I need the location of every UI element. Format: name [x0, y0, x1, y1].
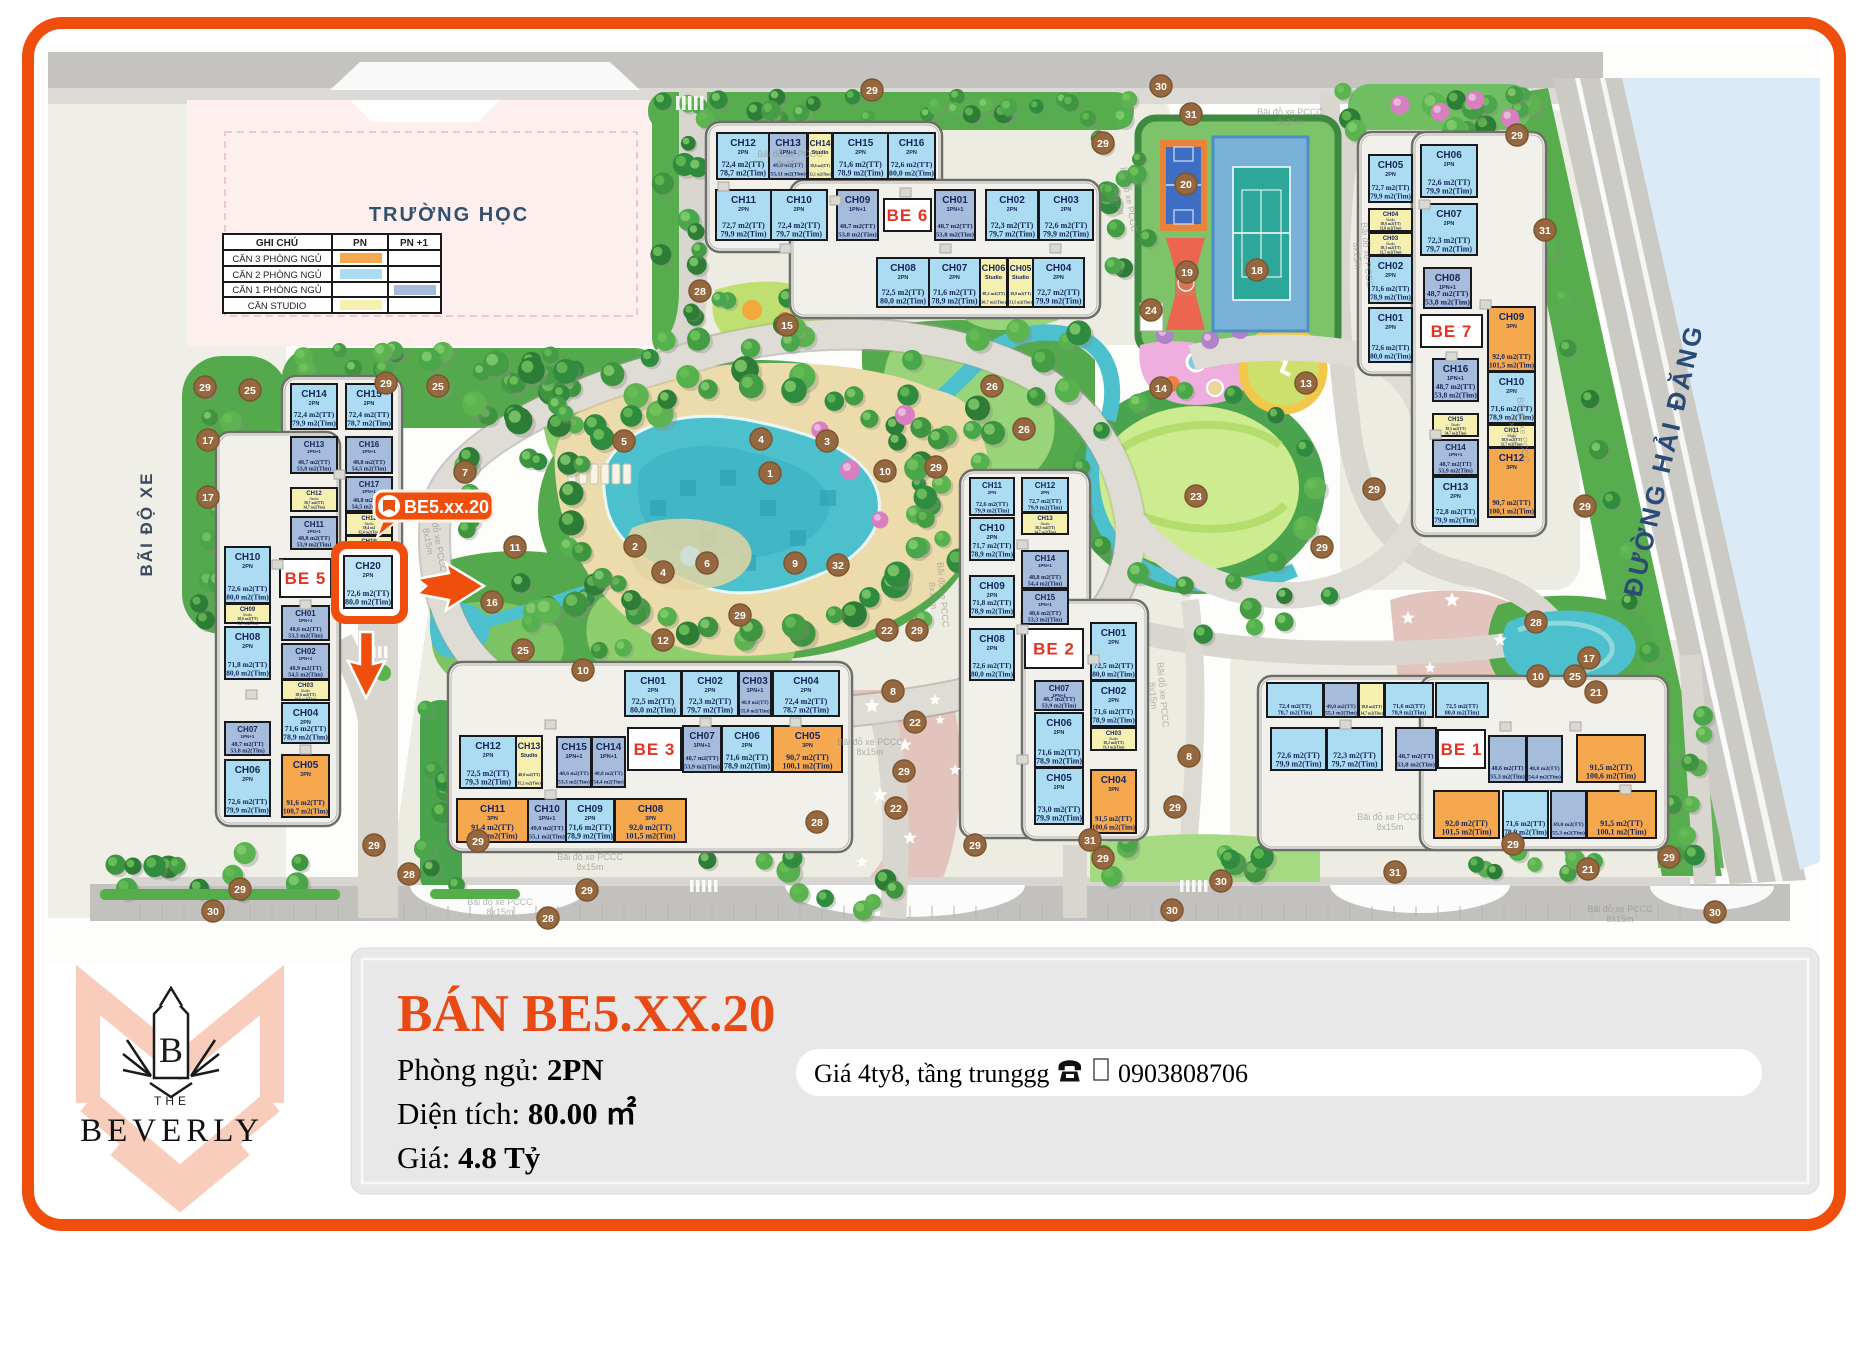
- svg-text:18: 18: [1251, 265, 1263, 277]
- svg-text:79,9 m2(Tim): 79,9 m2(Tim): [1275, 760, 1321, 769]
- svg-text:54,4 m2(Tim): 54,4 m2(Tim): [593, 779, 624, 786]
- svg-text:55,3 m2(Tim): 55,3 m2(Tim): [1552, 830, 1585, 837]
- svg-text:2PN: 2PN: [309, 401, 320, 407]
- svg-text:55,11 m2(Tim): 55,11 m2(Tim): [770, 171, 805, 178]
- svg-text:2PN: 2PN: [1385, 325, 1396, 331]
- svg-text:2PN: 2PN: [242, 777, 253, 783]
- svg-text:2PN: 2PN: [738, 207, 749, 213]
- svg-text:29: 29: [930, 462, 942, 474]
- svg-text:2PN: 2PN: [794, 207, 805, 213]
- svg-text:17: 17: [1583, 653, 1595, 665]
- svg-text:2PN: 2PN: [1108, 698, 1119, 704]
- svg-text:29: 29: [234, 884, 246, 896]
- svg-text:29: 29: [199, 382, 211, 394]
- svg-text:CH01: CH01: [1101, 628, 1127, 639]
- svg-text:38,2 m2(TT): 38,2 m2(TT): [1103, 741, 1124, 745]
- svg-text:78,9 m2(Tim): 78,9 m2(Tim): [1392, 710, 1427, 717]
- svg-text:29: 29: [1097, 138, 1109, 150]
- svg-text:CH12: CH12: [1035, 481, 1056, 490]
- svg-text:CH14: CH14: [301, 389, 327, 400]
- svg-text:20: 20: [1180, 179, 1192, 191]
- svg-text:CH11: CH11: [304, 520, 325, 529]
- svg-text:55,1 m2(Tim): 55,1 m2(Tim): [529, 834, 565, 841]
- svg-text:CH15: CH15: [1035, 593, 1056, 602]
- svg-text:38,0 m2(TT): 38,0 m2(TT): [237, 617, 258, 621]
- svg-text:11: 11: [509, 542, 520, 554]
- svg-text:79,9 m2(Tim): 79,9 m2(Tim): [292, 419, 336, 428]
- svg-text:CH09: CH09: [577, 804, 603, 815]
- svg-text:CH06: CH06: [982, 263, 1006, 273]
- svg-text:48,6 m2(TT): 48,6 m2(TT): [1492, 765, 1524, 772]
- svg-text:79,7 m2(Tim): 79,7 m2(Tim): [1331, 760, 1377, 769]
- svg-text:28: 28: [403, 869, 415, 881]
- svg-text:29: 29: [581, 885, 593, 897]
- svg-text:2PN: 2PN: [242, 644, 253, 650]
- svg-text:25: 25: [432, 381, 444, 393]
- svg-text:CH08: CH08: [235, 632, 261, 643]
- svg-text:54,4 m2(Tim): 54,4 m2(Tim): [1528, 774, 1561, 781]
- svg-text:2PN: 2PN: [1007, 207, 1018, 213]
- svg-text:53,8 m2(Tim): 53,8 m2(Tim): [838, 232, 877, 239]
- svg-text:1PN+1: 1PN+1: [1038, 563, 1052, 568]
- svg-text:53,3 m2(Tim): 53,3 m2(Tim): [558, 779, 590, 786]
- svg-text:101,5 m2(Tim): 101,5 m2(Tim): [1441, 828, 1491, 837]
- svg-text:CH06: CH06: [235, 765, 261, 776]
- svg-text:CH02: CH02: [295, 647, 316, 656]
- svg-text:79,9 m2(Tim): 79,9 m2(Tim): [1434, 516, 1477, 525]
- svg-text:35,2 m2(Tim): 35,2 m2(Tim): [517, 781, 541, 786]
- svg-text:79,7 m2(Tim): 79,7 m2(Tim): [989, 230, 1035, 239]
- svg-text:78,7 m2(Tim): 78,7 m2(Tim): [347, 419, 391, 428]
- svg-text:28: 28: [542, 913, 554, 925]
- svg-text:2PN: 2PN: [1450, 494, 1461, 500]
- svg-text:CH04: CH04: [1101, 775, 1127, 786]
- svg-text:4: 4: [758, 434, 764, 446]
- svg-text:2PN: 2PN: [987, 646, 998, 652]
- svg-text:79,7 m2(Tim): 79,7 m2(Tim): [687, 706, 733, 715]
- svg-text:78,9 m2(Tim): 78,9 m2(Tim): [931, 297, 977, 306]
- svg-text:53,9 m2(Tim): 53,9 m2(Tim): [1042, 703, 1077, 710]
- svg-text:48,8 m2(TT): 48,8 m2(TT): [1029, 574, 1061, 581]
- svg-text:48,8 m2(TT): 48,8 m2(TT): [594, 770, 622, 777]
- svg-text:2PN: 2PN: [906, 150, 917, 156]
- svg-text:29: 29: [1507, 839, 1519, 851]
- svg-text:CH08: CH08: [979, 634, 1005, 645]
- svg-text:Giá: 4.8 Tỷ: Giá: 4.8 Tỷ: [397, 1140, 541, 1175]
- svg-text:53,8 m2(Tim): 53,8 m2(Tim): [230, 748, 265, 755]
- svg-text:2PN: 2PN: [705, 688, 716, 694]
- svg-text:48,9 m2(TT): 48,9 m2(TT): [290, 665, 322, 672]
- svg-text:2PN: 2PN: [1108, 640, 1119, 646]
- svg-text:29: 29: [734, 610, 746, 622]
- svg-text:78,9 m2(Tim): 78,9 m2(Tim): [283, 733, 328, 742]
- svg-text:2PN: 2PN: [1385, 273, 1396, 279]
- svg-text:30,7 m2(Tim): 30,7 m2(Tim): [981, 300, 1006, 305]
- svg-text:CH10: CH10: [979, 523, 1005, 534]
- svg-text:2: 2: [632, 541, 638, 553]
- svg-text:3PN: 3PN: [802, 743, 813, 749]
- svg-text:2PN: 2PN: [949, 275, 960, 281]
- svg-text:3PN: 3PN: [300, 772, 311, 778]
- svg-text:78,9 m2(Tim): 78,9 m2(Tim): [971, 607, 1014, 616]
- svg-text:PN: PN: [353, 238, 367, 249]
- svg-text:CH07: CH07: [689, 731, 715, 742]
- svg-text:22: 22: [890, 803, 902, 815]
- svg-text:CH07: CH07: [237, 725, 258, 734]
- svg-text:53,3 m2(Tim): 53,3 m2(Tim): [1028, 617, 1063, 624]
- svg-text:CH10: CH10: [1499, 377, 1525, 388]
- svg-text:CH16: CH16: [899, 138, 925, 149]
- svg-text:29: 29: [472, 836, 484, 848]
- svg-text:29: 29: [866, 85, 878, 97]
- svg-text:30: 30: [1166, 905, 1178, 917]
- svg-text:80,0 m2(Tim): 80,0 m2(Tim): [1445, 710, 1480, 717]
- svg-text:38,6 m2(TT): 38,6 m2(TT): [295, 693, 316, 697]
- svg-text:71,6 m2(TT): 71,6 m2(TT): [1372, 285, 1410, 293]
- svg-text:CH07: CH07: [1436, 209, 1462, 220]
- svg-text:48,8 m2(TT): 48,8 m2(TT): [1529, 765, 1559, 772]
- svg-text:2PN: 2PN: [742, 743, 753, 749]
- svg-text:48,6 m2(TT): 48,6 m2(TT): [559, 770, 589, 777]
- svg-text:1PN+1: 1PN+1: [299, 618, 313, 623]
- svg-text:1PN+1: 1PN+1: [362, 449, 376, 454]
- svg-text:49,0 m2(TT): 49,0 m2(TT): [531, 825, 564, 832]
- svg-text:79,9 m2(Tim): 79,9 m2(Tim): [1426, 187, 1472, 196]
- svg-text:80,0 m2(Tim): 80,0 m2(Tim): [226, 593, 269, 602]
- svg-text:26: 26: [1018, 424, 1030, 436]
- svg-text:40,0 m2(TT): 40,0 m2(TT): [518, 772, 540, 777]
- svg-text:2PN: 2PN: [855, 150, 866, 156]
- svg-text:72,5 m2(TT): 72,5 m2(TT): [1446, 703, 1478, 710]
- svg-text:72,7 m2(TT): 72,7 m2(TT): [1029, 498, 1061, 505]
- svg-text:CH13: CH13: [518, 741, 541, 751]
- svg-text:3: 3: [824, 436, 830, 448]
- svg-text:29: 29: [898, 766, 910, 778]
- svg-text:29: 29: [380, 378, 392, 390]
- svg-text:25: 25: [1569, 671, 1581, 683]
- svg-text:79,9 m2(Tim): 79,9 m2(Tim): [1035, 297, 1081, 306]
- svg-text:CH14: CH14: [1445, 443, 1466, 452]
- svg-text:4: 4: [660, 567, 666, 579]
- svg-text:CH05: CH05: [293, 760, 319, 771]
- svg-text:22: 22: [909, 717, 921, 729]
- svg-text:79,3 m2(Tim): 79,3 m2(Tim): [465, 778, 511, 787]
- svg-text:1PN+1: 1PN+1: [947, 207, 964, 213]
- svg-text:BÃI ĐỘ XE: BÃI ĐỘ XE: [136, 472, 156, 577]
- svg-text:38,5 m2(TT): 38,5 m2(TT): [1445, 427, 1466, 431]
- svg-text:31: 31: [1084, 835, 1096, 847]
- svg-text:29: 29: [1097, 853, 1109, 865]
- svg-text:78,9 m2(Tim): 78,9 m2(Tim): [837, 169, 883, 178]
- svg-text:48,7 m2(TT): 48,7 m2(TT): [1043, 696, 1075, 703]
- svg-text:CH05: CH05: [1378, 160, 1404, 171]
- svg-text:2PN: 2PN: [363, 573, 374, 579]
- svg-text:29: 29: [368, 840, 380, 852]
- svg-text:48,7 m2(TT): 48,7 m2(TT): [686, 755, 719, 762]
- svg-text:THE: THE: [154, 1094, 190, 1108]
- svg-text:34,7 m2(Tim): 34,7 m2(Tim): [303, 506, 326, 510]
- svg-text:CĂN 3 PHÒNG NGỦ: CĂN 3 PHÒNG NGỦ: [232, 253, 321, 265]
- svg-text:2PN: 2PN: [988, 490, 997, 495]
- svg-text:55,0 m2(Tim): 55,0 m2(Tim): [740, 708, 770, 715]
- svg-text:CH07: CH07: [1049, 684, 1070, 693]
- svg-text:Studio: Studio: [985, 275, 1003, 281]
- svg-text:29: 29: [1579, 501, 1591, 513]
- svg-text:Bãi đỗ xe PCCC: Bãi đỗ xe PCCC: [1357, 812, 1423, 822]
- svg-text:1PN+1: 1PN+1: [849, 207, 866, 213]
- svg-text:CH11: CH11: [480, 804, 505, 815]
- svg-text:72,6 m2(TT): 72,6 m2(TT): [976, 501, 1008, 508]
- svg-text:72,7 m2(TT): 72,7 m2(TT): [1372, 184, 1410, 192]
- svg-text:BE 3: BE 3: [634, 740, 676, 759]
- svg-text:CH13: CH13: [1443, 482, 1469, 493]
- svg-text:BE 5: BE 5: [285, 569, 327, 588]
- svg-text:8x15m: 8x15m: [1376, 822, 1403, 832]
- svg-text:3PN: 3PN: [645, 816, 656, 822]
- svg-text:BEVERLY: BEVERLY: [80, 1113, 264, 1149]
- svg-text:78,7 m2(Tim): 78,7 m2(Tim): [1278, 710, 1313, 717]
- svg-text:29: 29: [911, 625, 923, 637]
- svg-text:2PN: 2PN: [1385, 172, 1396, 178]
- svg-text:30: 30: [1709, 907, 1721, 919]
- svg-text:38,0 m2(TT): 38,0 m2(TT): [1010, 292, 1031, 296]
- svg-text:101,5 m2(Tim): 101,5 m2(Tim): [1489, 362, 1535, 370]
- svg-text:2PN: 2PN: [1054, 785, 1065, 791]
- svg-text:80,0 m2(Tim): 80,0 m2(Tim): [971, 670, 1014, 679]
- svg-text:80,0 m2(Tim): 80,0 m2(Tim): [345, 598, 391, 607]
- svg-text:CH13: CH13: [775, 138, 801, 149]
- svg-text:CH07: CH07: [942, 263, 968, 274]
- svg-text:79,7 m2(Tim): 79,7 m2(Tim): [776, 230, 822, 239]
- svg-text:80,0 m2(Tim): 80,0 m2(Tim): [1092, 670, 1135, 679]
- svg-text:38,5 m2(TT): 38,5 m2(TT): [1035, 526, 1056, 530]
- svg-text:PN +1: PN +1: [400, 238, 429, 249]
- svg-text:2PN: 2PN: [1444, 221, 1455, 227]
- svg-text:80,0 m2(Tim): 80,0 m2(Tim): [630, 706, 676, 715]
- svg-text:2PN: 2PN: [1444, 162, 1455, 168]
- svg-text:72,4 m2(TT): 72,4 m2(TT): [1279, 703, 1311, 710]
- svg-text:CH09: CH09: [845, 195, 871, 206]
- svg-text:78,9 m2(Tim): 78,9 m2(Tim): [971, 550, 1014, 559]
- svg-text:8x15m: 8x15m: [856, 747, 883, 757]
- svg-text:48,8 m2(TT): 48,8 m2(TT): [353, 459, 385, 466]
- svg-text:31: 31: [1185, 109, 1197, 121]
- svg-text:32,7 m2(Tim): 32,7 m2(Tim): [1380, 251, 1403, 255]
- svg-text:Phòng ngủ: 2PN: Phòng ngủ: 2PN: [397, 1052, 604, 1087]
- svg-text:CH12: CH12: [475, 741, 501, 752]
- svg-text:100,1 m2(Tim): 100,1 m2(Tim): [782, 762, 832, 771]
- svg-text:GHI CHÚ: GHI CHÚ: [256, 236, 298, 249]
- svg-text:CH08: CH08: [638, 804, 664, 815]
- svg-text:CĂN 1 PHÒNG NGỦ: CĂN 1 PHÒNG NGỦ: [232, 284, 321, 296]
- svg-text:100,1 m2(Tim): 100,1 m2(Tim): [1489, 508, 1535, 516]
- svg-text:48,7 m2(TT): 48,7 m2(TT): [1398, 753, 1433, 760]
- svg-text:CH02: CH02: [999, 195, 1025, 206]
- svg-text:2PN: 2PN: [801, 688, 812, 694]
- svg-text:33,1 m2(Tim): 33,1 m2(Tim): [1103, 746, 1126, 750]
- svg-text:CH20: CH20: [355, 561, 381, 572]
- svg-text:69,0 m2(TT): 69,0 m2(TT): [1553, 821, 1583, 828]
- svg-text:CH09: CH09: [1499, 312, 1525, 323]
- svg-text:91,5 m2(TT): 91,5 m2(TT): [1095, 816, 1132, 823]
- svg-text:1PN+1: 1PN+1: [694, 743, 711, 749]
- svg-text:2PN: 2PN: [898, 275, 909, 281]
- svg-text:1PN+1: 1PN+1: [299, 656, 313, 661]
- svg-text:2PN: 2PN: [585, 816, 596, 822]
- svg-text:CH17: CH17: [359, 480, 380, 489]
- svg-text:21: 21: [1582, 864, 1594, 876]
- svg-text:BE 1: BE 1: [1441, 740, 1483, 759]
- svg-text:2PN: 2PN: [1054, 730, 1065, 736]
- svg-text:79,9 m2(Tim): 79,9 m2(Tim): [1370, 193, 1411, 201]
- svg-text:1PN+1: 1PN+1: [1038, 602, 1052, 607]
- svg-text:34,7 m2(Tim): 34,7 m2(Tim): [1034, 531, 1057, 535]
- svg-text:1PN+1: 1PN+1: [362, 489, 376, 494]
- svg-text:CH01: CH01: [640, 676, 666, 687]
- svg-text:38,6 m2(TT): 38,6 m2(TT): [810, 164, 830, 168]
- svg-text:38,2 m2(TT): 38,2 m2(TT): [982, 291, 1005, 296]
- svg-text:8x15m: 8x15m: [576, 862, 603, 872]
- svg-text:53,9 m2(Tim): 53,9 m2(Tim): [297, 542, 332, 549]
- svg-text:28: 28: [1530, 617, 1542, 629]
- svg-text:CH06: CH06: [1046, 718, 1072, 729]
- svg-text:14: 14: [1155, 383, 1167, 395]
- svg-text:80,0 m2(Tim): 80,0 m2(Tim): [880, 297, 926, 306]
- svg-text:79,7 m2(Tim): 79,7 m2(Tim): [1426, 245, 1472, 254]
- svg-text:71,6 m2(TT): 71,6 m2(TT): [1393, 703, 1425, 710]
- svg-text:55,1 m2(Tim): 55,1 m2(Tim): [1325, 710, 1357, 717]
- svg-text:5: 5: [621, 436, 627, 448]
- svg-text:53,9 m2(Tim): 53,9 m2(Tim): [684, 764, 720, 771]
- svg-text:24: 24: [1145, 305, 1157, 317]
- svg-text:CH05: CH05: [795, 731, 821, 742]
- svg-text:25: 25: [517, 645, 529, 657]
- svg-text:8: 8: [1186, 751, 1192, 763]
- svg-text:23: 23: [1190, 491, 1202, 503]
- svg-text:2PN: 2PN: [1506, 389, 1517, 395]
- svg-text:Diện tích: 80.00 ㎡: Diện tích: 80.00 ㎡: [397, 1096, 636, 1131]
- svg-text:8x15m: 8x15m: [1606, 914, 1633, 924]
- svg-text:28: 28: [811, 817, 823, 829]
- svg-text:33,6 m2(Tim): 33,6 m2(Tim): [295, 698, 318, 702]
- svg-text:3PN: 3PN: [487, 816, 498, 822]
- svg-text:CĂN 2 PHÒNG NGỦ: CĂN 2 PHÒNG NGỦ: [232, 269, 321, 281]
- svg-text:2PN: 2PN: [1041, 490, 1050, 495]
- svg-text:CH16: CH16: [1443, 364, 1469, 375]
- svg-text:28: 28: [694, 286, 706, 298]
- svg-text:CH06: CH06: [1436, 150, 1462, 161]
- svg-text:CH10: CH10: [235, 552, 261, 563]
- svg-text:1PN+1: 1PN+1: [1449, 452, 1463, 457]
- svg-text:38,6 m2(TT): 38,6 m2(TT): [1380, 222, 1401, 226]
- svg-text:48,7 m2(TT): 48,7 m2(TT): [937, 223, 972, 230]
- svg-text:CH15: CH15: [561, 742, 587, 753]
- svg-text:BE 6: BE 6: [887, 206, 929, 225]
- svg-text:48,8 m2(TT): 48,8 m2(TT): [298, 535, 330, 542]
- svg-text:79,9 m2(Tim): 79,9 m2(Tim): [720, 230, 766, 239]
- svg-text:CH14: CH14: [596, 742, 622, 753]
- svg-text:49,0 m2(TT): 49,0 m2(TT): [1326, 703, 1356, 710]
- svg-text:38,4 m2: 38,4 m2: [363, 526, 376, 530]
- svg-text:Bãi đỗ xe PCCC: Bãi đỗ xe PCCC: [1257, 107, 1323, 117]
- svg-text:CH14: CH14: [810, 139, 831, 148]
- svg-text:CH02: CH02: [1101, 686, 1127, 697]
- svg-text:CH16: CH16: [359, 440, 380, 449]
- svg-text:BE 2: BE 2: [1033, 640, 1075, 659]
- svg-text:54,4 m2(Tim): 54,4 m2(Tim): [1028, 581, 1063, 588]
- svg-text:Studio: Studio: [520, 753, 538, 759]
- svg-text:CH10: CH10: [534, 804, 560, 815]
- svg-text:100,1 m2(Tim): 100,1 m2(Tim): [1596, 828, 1646, 837]
- svg-text:78,7 m2(Tim): 78,7 m2(Tim): [720, 169, 766, 178]
- svg-text:53,8 m2(Tim): 53,8 m2(Tim): [297, 466, 332, 473]
- svg-text:17: 17: [202, 435, 214, 447]
- svg-text:80,0 m2(Tim): 80,0 m2(Tim): [226, 669, 269, 678]
- svg-text:53,3 m2(Tim): 53,3 m2(Tim): [288, 633, 323, 640]
- svg-text:1: 1: [767, 468, 773, 480]
- svg-text:CH13: CH13: [304, 440, 325, 449]
- svg-text:1PN+1: 1PN+1: [241, 734, 255, 739]
- svg-text:78,7 m2(Tim): 78,7 m2(Tim): [783, 706, 829, 715]
- svg-text:92,0 m2(TT): 92,0 m2(TT): [1492, 353, 1531, 361]
- svg-text:31: 31: [1539, 225, 1551, 237]
- svg-text:CH14: CH14: [1035, 554, 1056, 563]
- svg-text:1PN+1: 1PN+1: [539, 816, 556, 822]
- svg-text:54,5 m2(Tim): 54,5 m2(Tim): [288, 672, 323, 679]
- svg-text:9: 9: [792, 558, 798, 570]
- svg-text:100,7 m2(Tim): 100,7 m2(Tim): [283, 808, 329, 816]
- svg-text:78,9 m2(Tim): 78,9 m2(Tim): [1036, 757, 1082, 766]
- svg-text:CH02: CH02: [697, 676, 723, 687]
- svg-text:1PN+1: 1PN+1: [566, 754, 583, 760]
- svg-text:13: 13: [1300, 378, 1312, 390]
- svg-text:79,9 m2(Tim): 79,9 m2(Tim): [975, 508, 1010, 515]
- svg-text:29: 29: [1169, 802, 1181, 814]
- svg-text:Studio: Studio: [1012, 275, 1030, 281]
- svg-text:1PN+1: 1PN+1: [307, 449, 321, 454]
- svg-text:CH08: CH08: [890, 263, 916, 274]
- svg-text:53,8 m2(Tim): 53,8 m2(Tim): [1434, 391, 1477, 400]
- svg-text:10: 10: [1532, 671, 1544, 683]
- svg-text:72,6 m2(TT): 72,6 m2(TT): [1372, 344, 1410, 352]
- svg-text:30: 30: [1155, 81, 1167, 93]
- svg-text:8: 8: [890, 686, 896, 698]
- svg-text:CH11: CH11: [731, 195, 756, 206]
- svg-text:38,7 m2(TT): 38,7 m2(TT): [304, 501, 325, 505]
- svg-text:80,0 m2(Tim): 80,0 m2(Tim): [1370, 353, 1411, 361]
- svg-text:3PN: 3PN: [1506, 465, 1517, 471]
- svg-text:CH04: CH04: [793, 676, 819, 687]
- svg-text:32,1 m2(Tim): 32,1 m2(Tim): [809, 173, 831, 177]
- svg-text:17: 17: [202, 492, 214, 504]
- svg-text:53,8 m2(Tim): 53,8 m2(Tim): [1425, 298, 1470, 307]
- svg-text:CH01: CH01: [942, 195, 968, 206]
- svg-text:CH12: CH12: [730, 138, 756, 149]
- svg-text:29: 29: [1511, 130, 1523, 142]
- svg-text:78,9 m2(Tim): 78,9 m2(Tim): [567, 832, 613, 841]
- svg-text:79,9 m2(Tim): 79,9 m2(Tim): [1036, 814, 1082, 823]
- svg-text:BE 7: BE 7: [1431, 322, 1473, 341]
- svg-text:6: 6: [704, 558, 710, 570]
- svg-text:2PN: 2PN: [242, 564, 253, 570]
- svg-text:CH04: CH04: [1046, 263, 1072, 274]
- svg-text:53,8 m2(Tim): 53,8 m2(Tim): [936, 232, 974, 239]
- svg-text:29: 29: [1316, 542, 1328, 554]
- svg-text:Giá 4ty8, tầng trunggg: Giá 4ty8, tầng trunggg: [814, 1059, 1049, 1088]
- svg-text:CH01: CH01: [1378, 313, 1404, 324]
- svg-text:29: 29: [969, 840, 981, 852]
- svg-text:32: 32: [832, 560, 844, 572]
